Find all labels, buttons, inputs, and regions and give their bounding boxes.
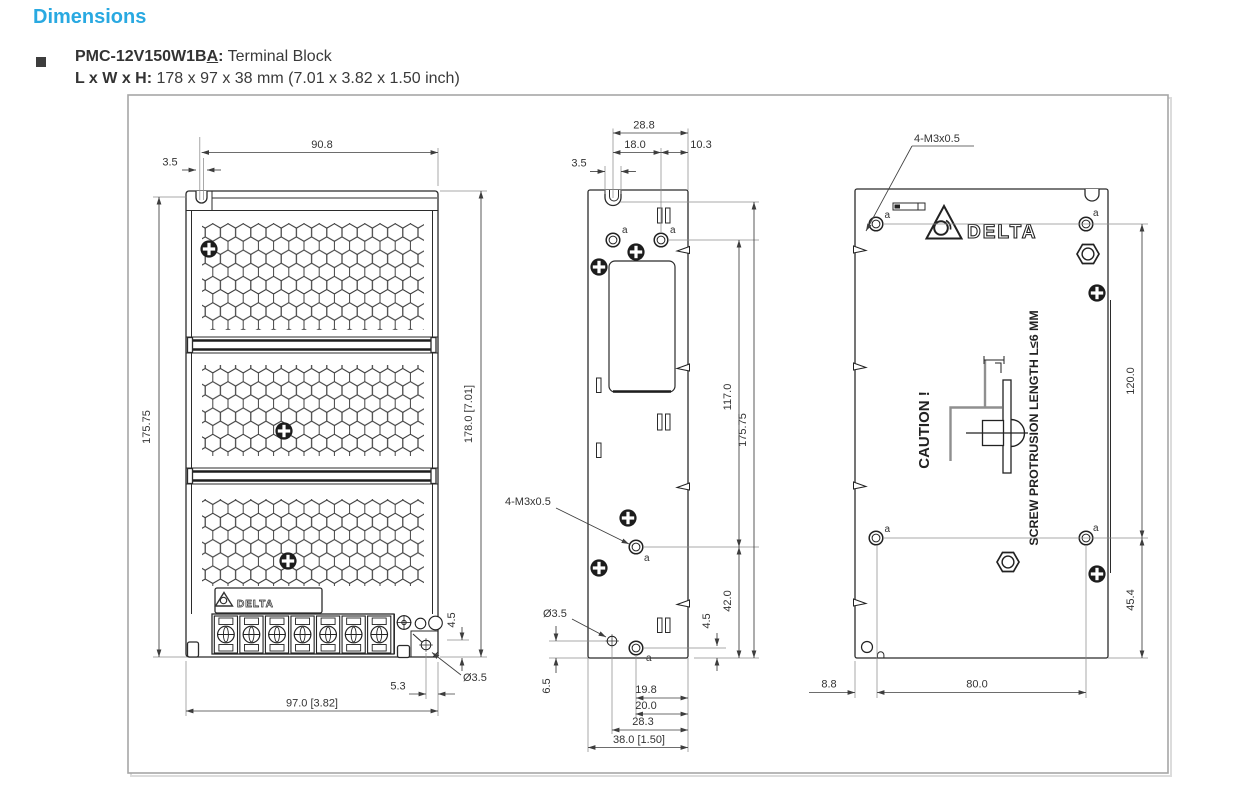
dimensions-drawing: DELTA [0, 0, 1246, 792]
side-dim-hole-to-bottom: 42.0 [722, 590, 734, 611]
indicator-hole [415, 618, 426, 629]
back-dim-hole-span-h: 80.0 [966, 679, 987, 691]
mount-hole-icon [629, 540, 643, 554]
caution-note: SCREW PROTRUSION LENGTH L≤6 MM [1027, 310, 1041, 545]
datasheet-page: Dimensions PMC-12V150W1BA: Terminal Bloc… [0, 0, 1246, 792]
hole-marker: a [1093, 523, 1099, 534]
vent-hex-panel-1 [202, 223, 424, 330]
hole-marker: a [646, 653, 652, 664]
back-top-notch [1085, 189, 1099, 201]
front-view: DELTA [141, 137, 487, 716]
corner-hole [862, 642, 873, 653]
foot-tab [398, 646, 410, 658]
back-logo-text: DELTA [967, 222, 1038, 243]
mount-hole-icon [869, 531, 883, 545]
screw-icon [275, 422, 292, 439]
screw-icon [627, 243, 644, 260]
screw-icon [1088, 565, 1105, 582]
side-dim-top-right: 10.3 [690, 139, 711, 151]
back-dim-hole-to-bottom: 45.4 [1125, 589, 1137, 610]
mount-hole-icon [654, 233, 668, 247]
hole-marker: a [644, 553, 650, 564]
side-dim-height: 175.75 [737, 413, 749, 447]
hole-marker: a [885, 524, 891, 535]
back-dim-edge-to-hole: 8.8 [821, 679, 836, 691]
foot-tab [188, 642, 199, 657]
front-dim-corner-offset-h: 5.3 [390, 681, 405, 693]
front-top-slot [196, 191, 207, 203]
front-dim-hole-dia: Ø3.5 [463, 672, 487, 684]
front-dim-top-width: 90.8 [311, 139, 332, 151]
screw-icon [279, 552, 296, 569]
back-dim-hole-span-v: 120.0 [1125, 367, 1137, 395]
terminal-cell [240, 616, 263, 653]
mount-hole-icon [629, 641, 643, 655]
hex-nut-icon [997, 553, 1019, 572]
side-hole-note: 4-M3x0.5 [505, 496, 551, 508]
mount-hole-icon [606, 233, 620, 247]
vent-hex-panel-3 [202, 499, 424, 586]
screw-icon [590, 559, 607, 576]
side-dim-hole-to-edge-b: 20.0 [635, 700, 656, 712]
front-label-plate: DELTA [215, 588, 322, 613]
vent-hex-panel-2 [202, 365, 424, 456]
front-dim-corner-offset-v: 4.5 [446, 612, 458, 627]
terminal-block [212, 614, 394, 654]
front-dim-slot-width: 3.5 [162, 157, 177, 169]
side-dim-slot-width: 3.5 [571, 158, 586, 170]
terminal-cell [265, 616, 288, 653]
hex-nut-icon [1077, 245, 1099, 264]
side-dim-hole-span-v: 117.0 [722, 384, 734, 411]
back-hole-note: 4-M3x0.5 [914, 133, 960, 145]
terminal-cell [214, 616, 237, 653]
side-hole-dia: Ø3.5 [543, 608, 567, 620]
side-dim-corner-offset-v: 4.5 [701, 613, 713, 628]
screw-icon [1088, 284, 1105, 301]
screw-icon [590, 258, 607, 275]
hole-marker: a [622, 225, 628, 236]
side-dim-hole-to-edge-a: 19.8 [635, 684, 656, 696]
screw-icon [619, 509, 636, 526]
hole-marker: a [670, 225, 676, 236]
hole-marker: a [885, 210, 891, 221]
side-dim-small-hole-to-edge: 28.3 [632, 716, 653, 728]
caution-plate [1003, 380, 1011, 473]
mount-hole-icon [869, 217, 883, 231]
caution-title: CAUTION ! [916, 391, 933, 469]
terminal-cell [317, 616, 340, 653]
side-dim-total-width: 38.0 [1.50] [613, 734, 665, 746]
front-dim-height-right: 178.0 [7.01] [463, 385, 475, 443]
front-logo-text: DELTA [237, 599, 274, 610]
side-dim-top-total: 28.8 [633, 120, 654, 132]
back-view: DELTA a a a a [809, 133, 1148, 698]
indicator-hole [429, 616, 443, 630]
front-dim-total-width: 97.0 [3.82] [286, 698, 338, 710]
terminal-cell [368, 616, 391, 653]
side-dim-small-hole-bottom: 6.5 [541, 678, 553, 693]
terminal-cell [342, 616, 365, 653]
front-dim-height-left: 175.75 [141, 410, 153, 444]
terminal-cell [291, 616, 314, 653]
back-body-outline [855, 189, 1108, 658]
side-dim-top-left: 18.0 [624, 139, 645, 151]
side-cutout [609, 261, 675, 392]
screw-icon [200, 240, 217, 257]
hole-marker: a [1093, 208, 1099, 219]
